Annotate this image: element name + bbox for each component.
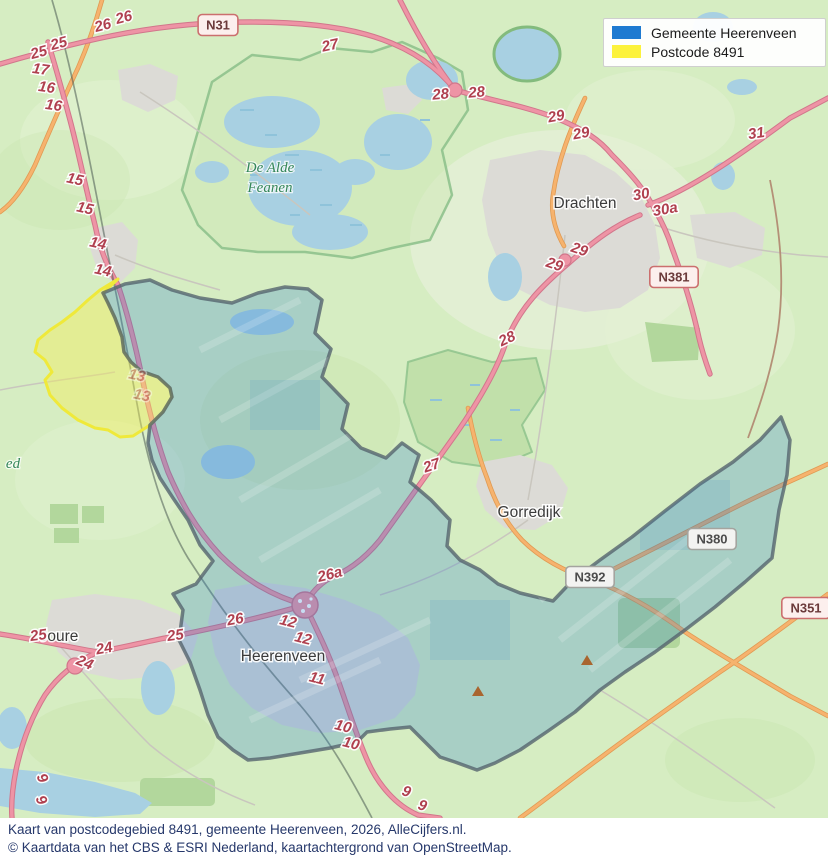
- road-shield-text: N380: [696, 532, 727, 547]
- legend-swatch: [612, 45, 641, 58]
- road-shield-text: N392: [574, 570, 605, 585]
- nature-area-label: ed: [6, 456, 21, 472]
- road-shield-text: N381: [658, 270, 689, 285]
- map-caption: Kaart van postcodegebied 8491, gemeente …: [0, 818, 828, 861]
- road-shield: N380: [688, 529, 736, 550]
- road-shield: N392: [566, 567, 614, 588]
- caption-line-1: Kaart van postcodegebied 8491, gemeente …: [8, 821, 828, 839]
- exit-number-label: 16: [37, 78, 57, 97]
- town-label: Drachten: [554, 195, 617, 212]
- legend-label: Gemeente Heerenveen: [651, 25, 797, 41]
- road-shield: N31: [198, 15, 238, 36]
- legend-item: Gemeente Heerenveen: [612, 23, 817, 42]
- exit-number-label: 25: [165, 626, 186, 645]
- nature-area-label: De Alde: [245, 160, 295, 176]
- map-legend: Gemeente HeerenveenPostcode 8491: [603, 18, 826, 67]
- exit-number-label: 29: [546, 107, 567, 127]
- exit-number-label: 16: [44, 96, 64, 115]
- exit-number-label: 31: [747, 124, 766, 143]
- road-shield: N351: [782, 598, 828, 619]
- road-shield-text: N31: [206, 18, 230, 33]
- exit-number-label: 28: [431, 85, 451, 104]
- exit-number-label: 28: [467, 83, 487, 102]
- legend-item: Postcode 8491: [612, 42, 817, 61]
- road-shield: N381: [650, 267, 698, 288]
- caption-line-2: © Kaartdata van het CBS & ESRI Nederland…: [8, 839, 828, 857]
- exit-number-label: 26: [225, 610, 246, 630]
- town-label: Heerenveen: [241, 648, 325, 665]
- legend-label: Postcode 8491: [651, 44, 744, 60]
- map-canvas: N31N381N380N392N351 DrachtenGorredijkJou…: [0, 0, 828, 818]
- exit-number-label: 25: [28, 626, 49, 645]
- nature-area-label: Feanen: [247, 180, 293, 196]
- town-label: Gorredijk: [498, 504, 561, 521]
- exit-number-label: 17: [31, 60, 51, 79]
- exit-number-label: 24: [94, 639, 115, 659]
- postcode-map-page: N31N381N380N392N351 DrachtenGorredijkJou…: [0, 0, 828, 861]
- road-shield-text: N351: [790, 601, 821, 616]
- exit-number-label: 29: [571, 124, 592, 144]
- legend-swatch: [612, 26, 641, 39]
